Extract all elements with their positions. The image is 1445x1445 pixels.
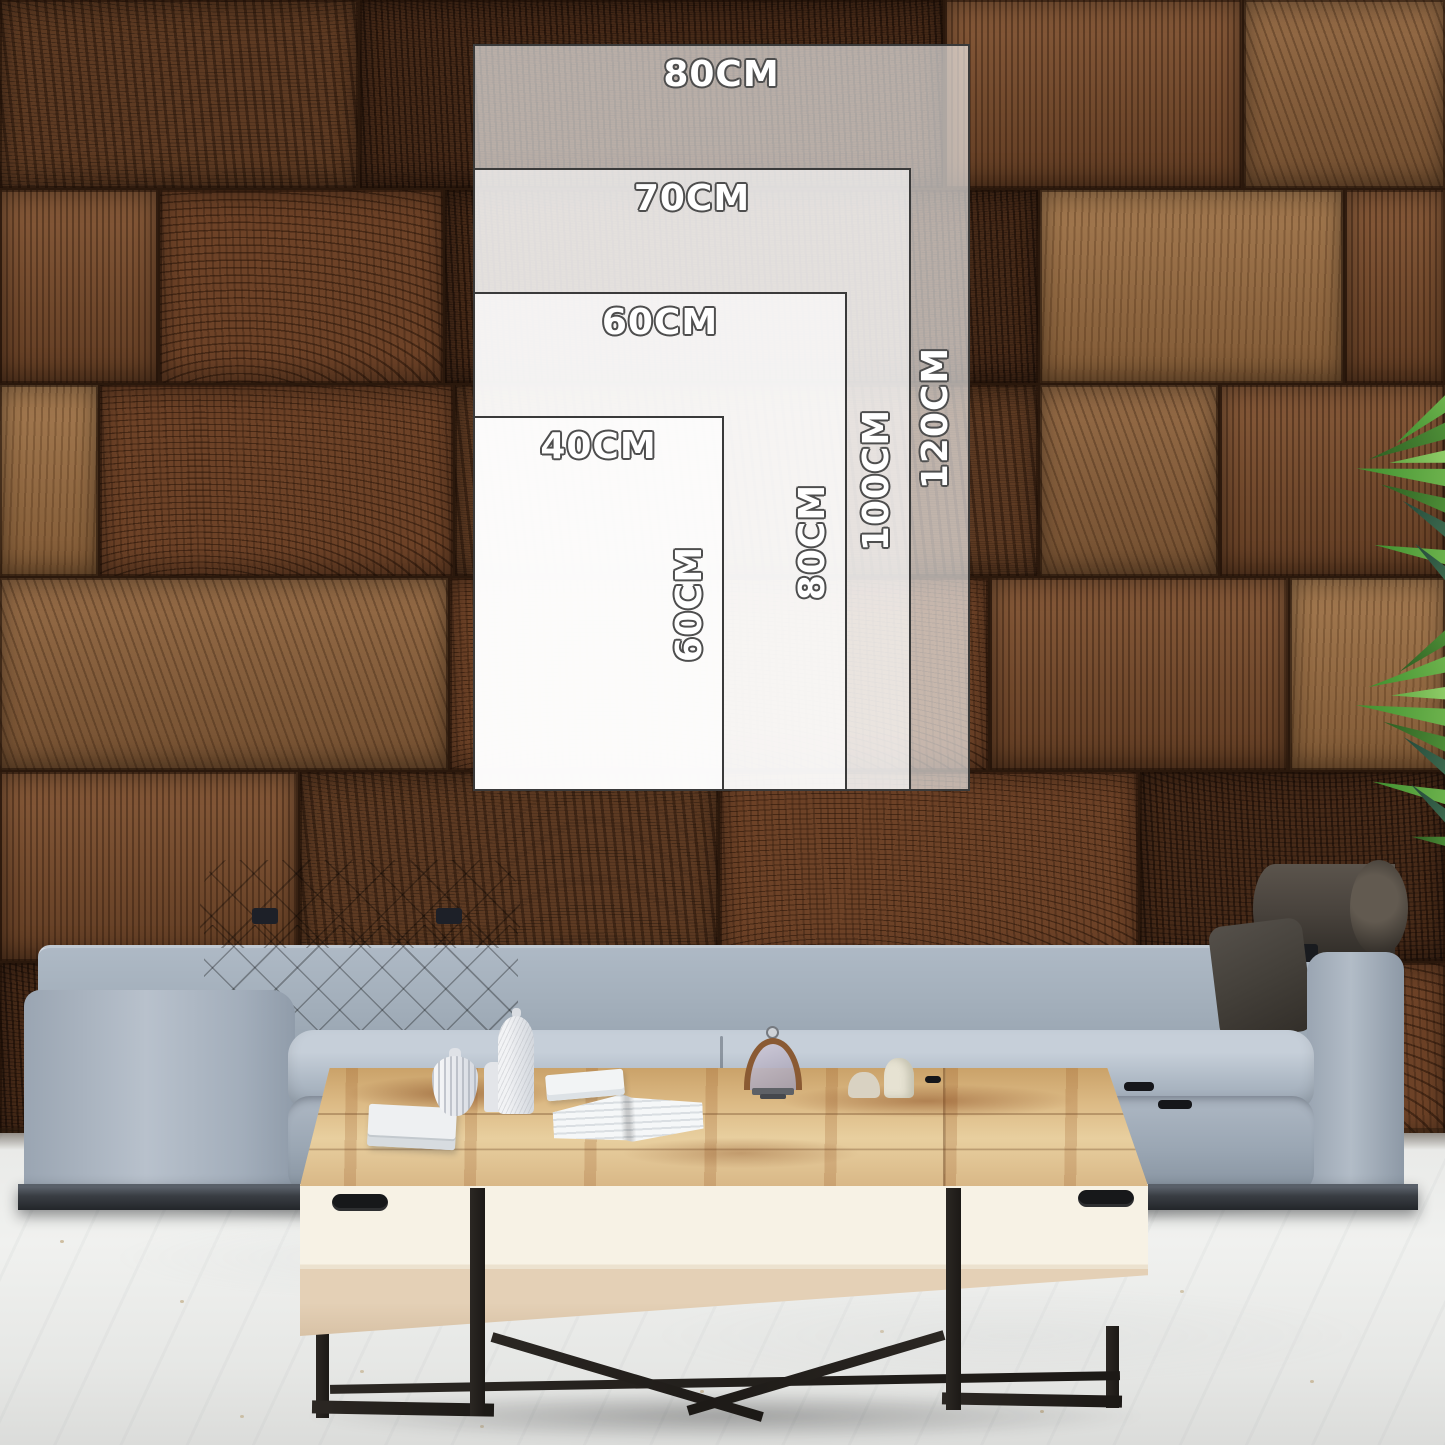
wall-floor-shadow (0, 1128, 1445, 1150)
floor-texture (0, 1133, 1445, 1445)
height-label-100: 100CM (856, 408, 897, 550)
wood-tile (0, 385, 98, 576)
wood-tile (1040, 190, 1343, 383)
wood-tile (0, 578, 448, 770)
wood-tile (0, 190, 158, 383)
wood-tile (990, 578, 1288, 770)
height-label-60: 60CM (669, 545, 710, 661)
width-label-40: 40CM (540, 426, 656, 467)
wood-tile (160, 190, 443, 383)
wood-tile (0, 963, 358, 1140)
size-rect-40x60: 40CM 60CM (473, 416, 724, 791)
width-label-60: 60CM (602, 302, 718, 343)
floor-specks (60, 1240, 64, 1243)
wood-tile (1345, 190, 1445, 383)
wood-tile (1290, 578, 1445, 770)
wood-tile (0, 0, 358, 188)
wood-tile (1220, 385, 1445, 576)
wood-tile (300, 772, 718, 961)
wood-tile (1244, 0, 1445, 188)
width-label-80: 80CM (663, 54, 779, 95)
wood-tile (0, 772, 298, 961)
product-size-guide-mockup: 80CM 120CM 70CM 100CM 60CM 80CM 40CM 60C… (0, 0, 1445, 1445)
wood-tile (880, 963, 1218, 1140)
wood-tile (1140, 772, 1445, 961)
wood-tile (1040, 385, 1218, 576)
height-label-80: 80CM (792, 483, 833, 599)
wood-tile (100, 385, 453, 576)
wood-tile (720, 772, 1138, 961)
height-label-120: 120CM (915, 346, 956, 488)
width-label-70: 70CM (634, 178, 750, 219)
wood-tile (945, 0, 1242, 188)
wood-tile (360, 963, 878, 1140)
wood-tile (1220, 963, 1445, 1140)
